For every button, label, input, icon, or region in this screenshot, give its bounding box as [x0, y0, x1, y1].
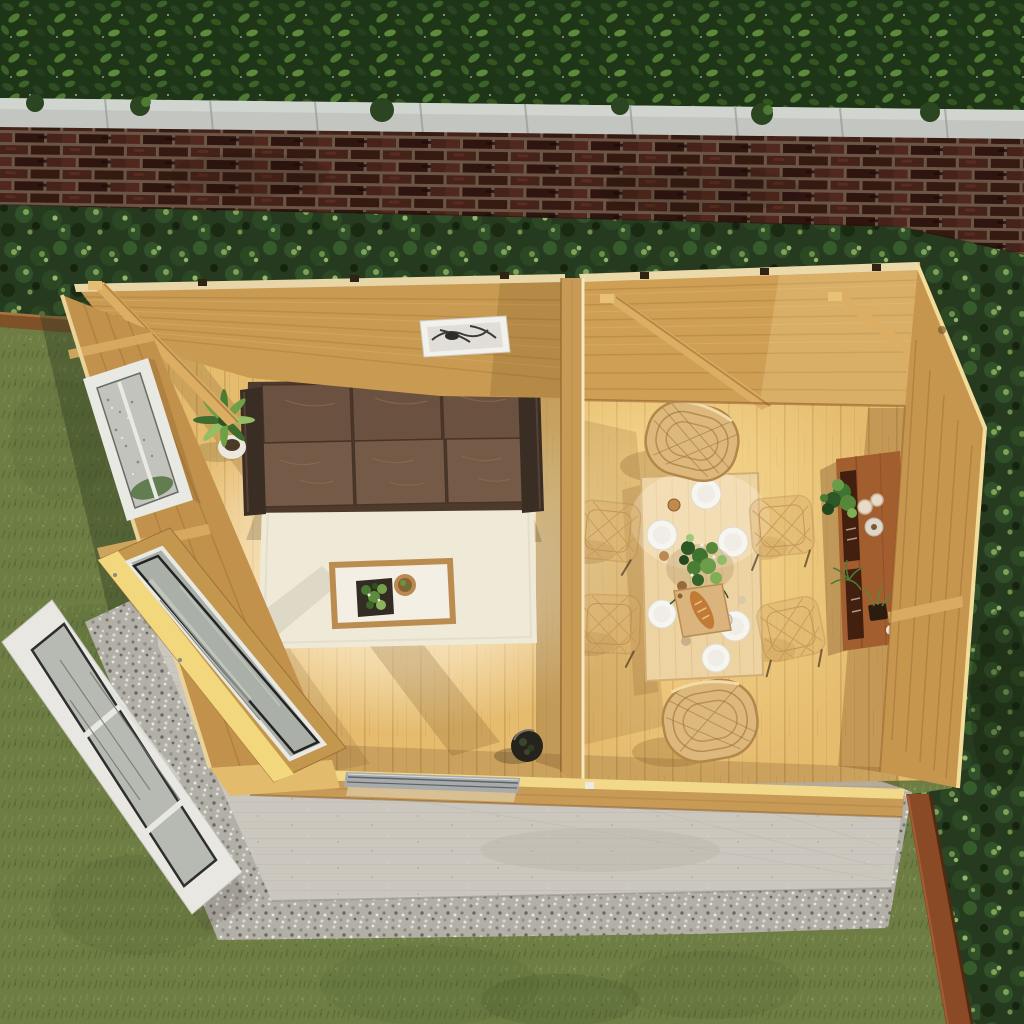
- coffee-table: [332, 561, 453, 626]
- sideboard-plate: [865, 518, 883, 536]
- partition-wall: [561, 278, 583, 790]
- patio-stain: [480, 828, 720, 872]
- dining-table: [630, 470, 770, 681]
- wine-glass: [871, 494, 883, 506]
- render-stage: [0, 0, 1024, 1024]
- garden-room-aerial-render: [0, 0, 1024, 1024]
- back-wall-dining: [579, 262, 920, 410]
- door-hardware: [585, 782, 594, 789]
- picture-frame: [420, 316, 510, 357]
- sofa: [240, 379, 544, 516]
- table-plant-tray: [356, 578, 394, 617]
- garden-room: [62, 262, 985, 817]
- woven-bowl: [394, 574, 416, 596]
- wine-glass: [858, 500, 872, 514]
- bread-board: [674, 584, 731, 637]
